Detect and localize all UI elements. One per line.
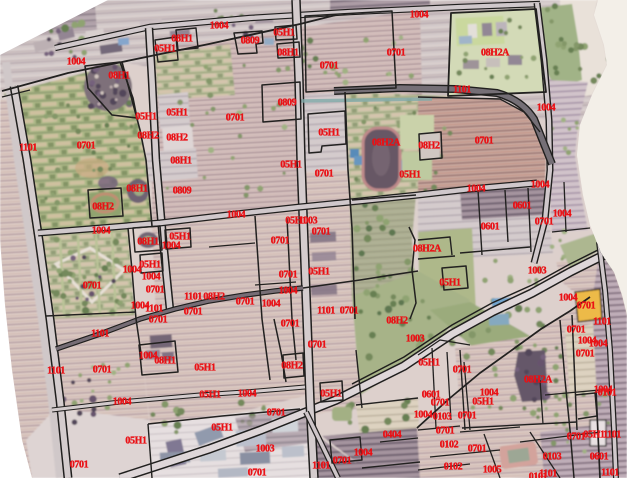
svg-text:1004: 1004 bbox=[537, 102, 556, 113]
svg-text:08H1: 08H1 bbox=[137, 236, 159, 247]
svg-text:0102: 0102 bbox=[440, 439, 459, 450]
svg-text:0103: 0103 bbox=[433, 411, 452, 422]
svg-text:1101: 1101 bbox=[453, 84, 471, 95]
svg-text:1004: 1004 bbox=[238, 388, 257, 399]
svg-text:1101: 1101 bbox=[91, 328, 109, 339]
svg-text:0103: 0103 bbox=[543, 451, 562, 462]
svg-text:1004: 1004 bbox=[123, 264, 142, 275]
svg-text:0701: 0701 bbox=[436, 425, 455, 436]
svg-text:0701: 0701 bbox=[577, 300, 596, 311]
svg-text:05H1: 05H1 bbox=[472, 396, 494, 407]
svg-text:0701: 0701 bbox=[468, 443, 487, 454]
svg-text:1004: 1004 bbox=[227, 209, 246, 220]
svg-text:1101: 1101 bbox=[312, 460, 330, 471]
svg-text:1004: 1004 bbox=[531, 179, 550, 190]
svg-text:0701: 0701 bbox=[93, 364, 112, 375]
svg-text:05H1: 05H1 bbox=[211, 422, 233, 433]
svg-text:08H2: 08H2 bbox=[166, 132, 188, 143]
svg-text:08H2A: 08H2A bbox=[524, 374, 553, 385]
svg-text:1101: 1101 bbox=[593, 316, 611, 327]
svg-text:05H1: 05H1 bbox=[308, 266, 330, 277]
svg-text:0701: 0701 bbox=[267, 407, 286, 418]
svg-text:08H2A: 08H2A bbox=[372, 137, 401, 148]
svg-text:0809: 0809 bbox=[241, 35, 260, 46]
svg-text:05H1: 05H1 bbox=[318, 127, 340, 138]
svg-text:05H1: 05H1 bbox=[154, 43, 176, 54]
svg-text:1004: 1004 bbox=[142, 271, 161, 282]
svg-text:0701: 0701 bbox=[431, 397, 450, 408]
svg-text:0809: 0809 bbox=[278, 97, 297, 108]
svg-text:0701: 0701 bbox=[184, 306, 203, 317]
svg-text:08H1: 08H1 bbox=[170, 155, 192, 166]
svg-text:08H1: 08H1 bbox=[108, 70, 130, 81]
svg-text:08H2: 08H2 bbox=[203, 291, 225, 302]
svg-text:0701: 0701 bbox=[308, 339, 327, 350]
svg-text:1101: 1101 bbox=[47, 365, 65, 376]
svg-text:0601: 0601 bbox=[481, 221, 500, 232]
svg-text:0701: 0701 bbox=[453, 364, 472, 375]
svg-text:0701: 0701 bbox=[271, 235, 290, 246]
svg-text:0701: 0701 bbox=[312, 226, 331, 237]
svg-text:1003: 1003 bbox=[299, 215, 318, 226]
svg-text:05H1: 05H1 bbox=[199, 389, 221, 400]
svg-text:1004: 1004 bbox=[210, 20, 229, 31]
svg-text:0701: 0701 bbox=[226, 112, 245, 123]
svg-text:0701: 0701 bbox=[567, 324, 586, 335]
svg-text:05H1: 05H1 bbox=[135, 111, 157, 122]
svg-text:08H2: 08H2 bbox=[137, 130, 159, 141]
svg-text:1003: 1003 bbox=[256, 443, 275, 454]
svg-text:1101: 1101 bbox=[601, 467, 619, 478]
svg-text:0701: 0701 bbox=[576, 348, 595, 359]
svg-text:1004: 1004 bbox=[354, 447, 373, 458]
svg-text:0701: 0701 bbox=[83, 280, 102, 291]
svg-text:1101: 1101 bbox=[603, 429, 621, 440]
svg-text:1101: 1101 bbox=[145, 303, 163, 314]
svg-text:1101: 1101 bbox=[19, 142, 37, 153]
svg-text:08H2: 08H2 bbox=[418, 140, 440, 151]
svg-text:0601: 0601 bbox=[590, 451, 609, 462]
svg-text:1004: 1004 bbox=[559, 292, 578, 303]
svg-text:1004: 1004 bbox=[262, 298, 281, 309]
svg-text:1003: 1003 bbox=[528, 265, 547, 276]
svg-text:08H2: 08H2 bbox=[386, 315, 408, 326]
svg-text:1004: 1004 bbox=[410, 9, 429, 20]
svg-text:08H1: 08H1 bbox=[277, 47, 299, 58]
svg-text:08H1: 08H1 bbox=[154, 355, 176, 366]
svg-text:08H1: 08H1 bbox=[126, 183, 148, 194]
svg-text:1101: 1101 bbox=[184, 291, 202, 302]
svg-text:05H1: 05H1 bbox=[439, 277, 461, 288]
svg-text:0701: 0701 bbox=[387, 47, 406, 58]
svg-text:0701: 0701 bbox=[340, 305, 359, 316]
svg-text:05H1: 05H1 bbox=[583, 429, 605, 440]
svg-text:08H2: 08H2 bbox=[281, 360, 303, 371]
svg-text:0701: 0701 bbox=[281, 318, 300, 329]
svg-text:1004: 1004 bbox=[92, 225, 111, 236]
svg-text:05H1: 05H1 bbox=[273, 27, 295, 38]
svg-text:1004: 1004 bbox=[279, 285, 298, 296]
svg-text:0701: 0701 bbox=[315, 168, 334, 179]
svg-text:1004: 1004 bbox=[553, 208, 572, 219]
svg-text:0101: 0101 bbox=[529, 471, 548, 478]
svg-text:1004: 1004 bbox=[67, 56, 86, 67]
svg-text:0701: 0701 bbox=[333, 455, 352, 466]
svg-text:0809: 0809 bbox=[173, 185, 192, 196]
svg-text:1003: 1003 bbox=[406, 333, 425, 344]
svg-text:05H1: 05H1 bbox=[139, 259, 161, 270]
svg-text:08H2: 08H2 bbox=[92, 201, 114, 212]
svg-text:0701: 0701 bbox=[77, 140, 96, 151]
svg-text:05H1: 05H1 bbox=[280, 159, 302, 170]
svg-text:05H1: 05H1 bbox=[399, 169, 421, 180]
svg-text:1004: 1004 bbox=[414, 409, 433, 420]
svg-text:05H1: 05H1 bbox=[418, 357, 440, 368]
svg-text:0101: 0101 bbox=[598, 387, 617, 398]
svg-text:0701: 0701 bbox=[236, 296, 255, 307]
svg-text:08H2A: 08H2A bbox=[481, 47, 510, 58]
svg-text:0701: 0701 bbox=[70, 459, 89, 470]
svg-text:05H1: 05H1 bbox=[320, 388, 342, 399]
svg-text:1004: 1004 bbox=[162, 240, 181, 251]
svg-text:1101: 1101 bbox=[317, 305, 335, 316]
svg-text:05H1: 05H1 bbox=[125, 435, 147, 446]
svg-text:08H2A: 08H2A bbox=[413, 243, 442, 254]
svg-text:05H1: 05H1 bbox=[166, 107, 188, 118]
svg-text:0404: 0404 bbox=[383, 429, 402, 440]
svg-text:0701: 0701 bbox=[149, 314, 168, 325]
svg-text:0102: 0102 bbox=[444, 461, 463, 472]
svg-text:0701: 0701 bbox=[320, 60, 339, 71]
svg-text:1004: 1004 bbox=[467, 183, 486, 194]
svg-text:1004: 1004 bbox=[113, 396, 132, 407]
svg-text:0701: 0701 bbox=[535, 216, 554, 227]
svg-text:0701: 0701 bbox=[475, 135, 494, 146]
svg-text:1005: 1005 bbox=[483, 464, 502, 475]
svg-text:0601: 0601 bbox=[513, 200, 532, 211]
svg-text:05H1: 05H1 bbox=[194, 362, 216, 373]
svg-text:0701: 0701 bbox=[279, 269, 298, 280]
svg-text:0701: 0701 bbox=[458, 410, 477, 421]
svg-text:0701: 0701 bbox=[248, 467, 267, 478]
svg-text:0701: 0701 bbox=[146, 284, 165, 295]
